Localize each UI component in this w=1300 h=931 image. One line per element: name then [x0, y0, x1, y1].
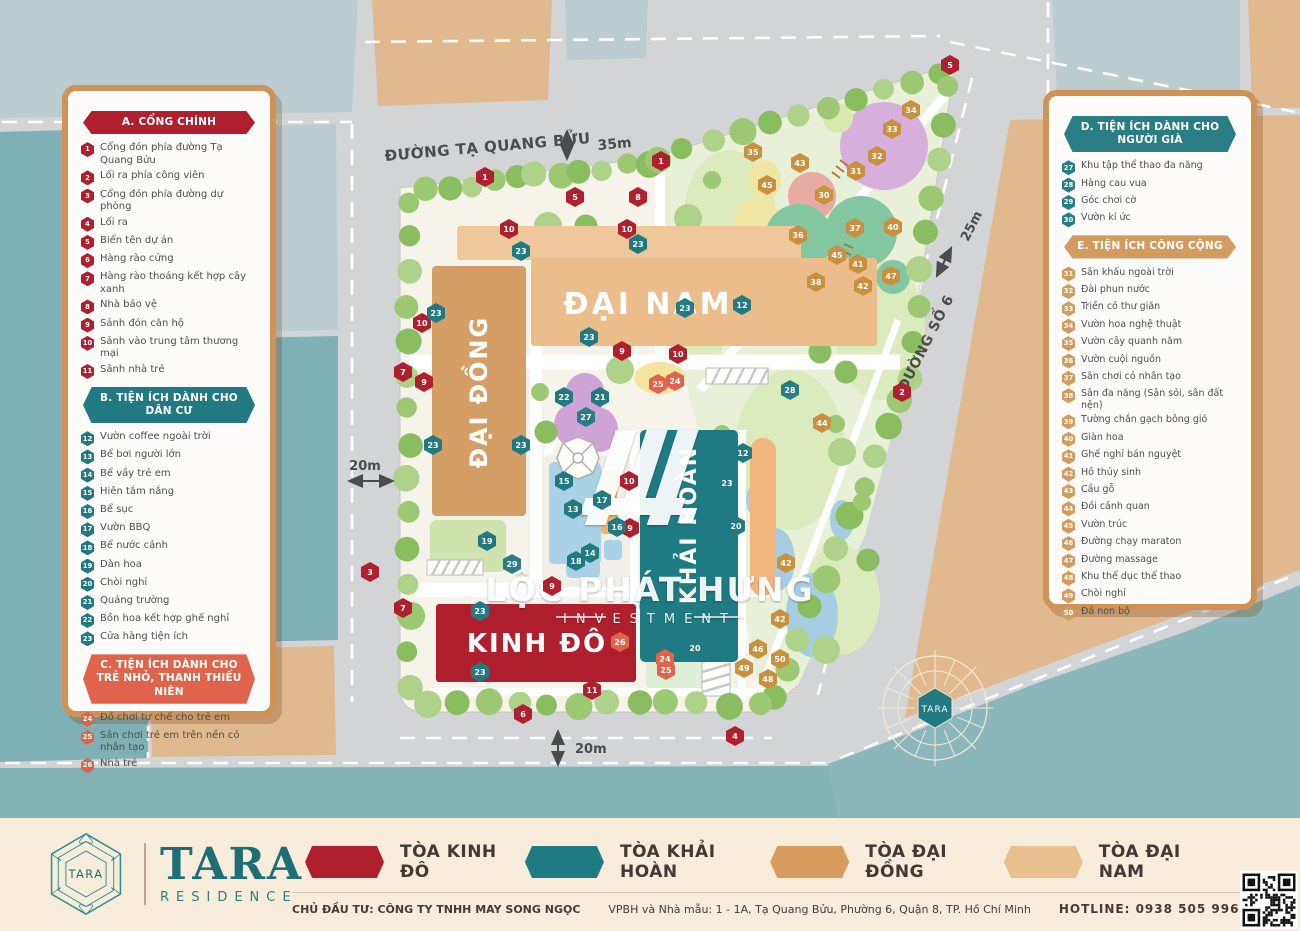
brand-wordmark: TARA RESIDENCE [160, 843, 303, 905]
qr-code [1240, 871, 1298, 929]
legend-item-label: Bể sục [100, 504, 133, 517]
legend-item-label: Vườn cuội nguồn [1081, 354, 1161, 366]
legend-item-label: Đài phun nước [1081, 284, 1150, 296]
legend-item-label: Dàn hoa [100, 559, 142, 572]
map-marker-41: 41 [849, 254, 867, 274]
legend-section-header-C: C. TIỆN ÍCH DÀNH CHO TRẺ NHỎ, THANH THIẾ… [83, 654, 255, 703]
map-marker-3: 3 [361, 562, 379, 582]
map-marker-23: 23 [676, 298, 694, 318]
hotline-text: HOTLINE: 0938 505 996 [1059, 902, 1240, 916]
legend-section-header-B: B. TIỆN ÍCH DÀNH CHO DÂN CƯ [83, 387, 255, 423]
legend-item-label: Vườn trúc [1081, 519, 1127, 531]
map-marker-47: 47 [882, 266, 900, 286]
legend-item-number: 43 [1062, 484, 1075, 499]
tower-swatch [1004, 846, 1083, 878]
map-marker-23: 23 [512, 241, 530, 261]
legend-item-label: Chòi nghỉ [100, 577, 147, 590]
legend-item-number: 14 [81, 468, 94, 483]
legend-item: 9Sảnh đón căn hộ [81, 318, 257, 333]
legend-item: 27Khu tập thể thao đa năng [1062, 160, 1238, 175]
legend-item-number: 17 [81, 522, 94, 537]
legend-item-number: 36 [1062, 354, 1075, 369]
map-marker-29: 29 [503, 554, 521, 574]
map-marker-1: 1 [652, 151, 670, 171]
legend-item: 11Sảnh nhà trẻ [81, 364, 257, 379]
tower-swatch [525, 846, 604, 878]
map-marker-10: 10 [618, 219, 636, 239]
legend-item-label: Giàn hoa [1081, 432, 1124, 444]
legend-section-header-A: A. CỔNG CHÍNH [83, 111, 255, 134]
legend-item-number: 25 [81, 730, 94, 745]
legend-item-label: Bồn hoa kết hợp ghế nghỉ [100, 613, 229, 626]
map-marker-46: 46 [749, 639, 767, 659]
map-marker-23: 23 [471, 662, 489, 682]
legend-item-number: 30 [1062, 212, 1075, 227]
legend-item-label: Nhà bảo vệ [100, 299, 157, 312]
legend-item: 25Sân chơi trẻ em trên nền cỏ nhân tạo [81, 730, 257, 755]
legend-item-number: 24 [81, 712, 94, 727]
legend-item-label: Cổng đón phía đường dự phòng [100, 189, 257, 214]
legend-panel-left: A. CỔNG CHÍNH1Cổng đón phía đường Tạ Qua… [62, 85, 276, 717]
legend-item: 29Góc chơi cờ [1062, 195, 1238, 210]
legend-item-label: Vườn coffee ngoài trời [100, 431, 211, 444]
legend-item-label: Ghế nghỉ bán nguyệt [1081, 449, 1181, 461]
master-plan-poster: ĐẠI NAM ĐẠI ĐỒNG KHẢI HOÀN KINH ĐÔ ĐƯỜNG… [0, 0, 1300, 931]
legend-item: 41Ghế nghỉ bán nguyệt [1062, 449, 1238, 464]
legend-item-number: 5 [81, 235, 94, 250]
legend-item-number: 20 [81, 577, 94, 592]
legend-item: 21Quảng trường [81, 595, 257, 610]
footer-divider [292, 892, 1240, 893]
legend-item-label: Đồi cảnh quan [1081, 501, 1150, 513]
legend-item-number: 35 [1062, 336, 1075, 351]
legend-item-label: Vườn hoa nghệ thuật [1081, 319, 1181, 331]
legend-item-number: 6 [81, 253, 94, 268]
legend-item-label: Bể vầy trẻ em [100, 468, 171, 481]
map-marker-17: 17 [593, 490, 611, 510]
map-marker-7: 7 [394, 598, 412, 618]
legend-item-label: Góc chơi cờ [1081, 195, 1136, 207]
legend-item-number: 9 [81, 318, 94, 333]
legend-item-label: Đường chạy maraton [1081, 536, 1181, 548]
tower-legend-item: TÒA KHẢI HOÀN [525, 842, 770, 882]
legend-section-header-D: D. TIỆN ÍCH DÀNH CHO NGƯỜI GIÀ [1064, 116, 1236, 152]
legend-item-label: Hiên tắm nắng [100, 486, 174, 499]
legend-item: 35Vườn cây quanh năm [1062, 336, 1238, 351]
legend-item: 2Lối ra phía công viên [81, 170, 257, 185]
legend-item: 47Đường massage [1062, 554, 1238, 569]
legend-item-label: Tường chắn gạch bông gió [1081, 414, 1207, 426]
legend-item-number: 49 [1062, 588, 1075, 603]
map-marker-10: 10 [620, 471, 638, 491]
legend-item-label: Hàng rào cứng [100, 253, 174, 266]
tower-legend-item: TÒA ĐẠI NAM [1004, 842, 1225, 882]
map-marker-23: 23 [512, 435, 530, 455]
map-marker-42: 42 [854, 276, 872, 296]
legend-item-label: Sảnh vào trung tâm thương mại [100, 336, 257, 361]
map-marker-5: 5 [941, 55, 959, 75]
legend-item: 26Nhà trẻ [81, 758, 257, 773]
legend-item: 45Vườn trúc [1062, 519, 1238, 534]
legend-item: 8Nhà bảo vệ [81, 299, 257, 314]
legend-item-label: Khu thể dục thể thao [1081, 571, 1181, 583]
legend-item: 16Bể sục [81, 504, 257, 519]
map-marker-23: 23 [424, 435, 442, 455]
legend-item: 24Đồ chơi tự chế cho trẻ em [81, 712, 257, 727]
map-marker-26: 26 [611, 632, 629, 652]
map-marker-28: 28 [781, 380, 799, 400]
legend-item-number: 26 [81, 758, 94, 773]
map-marker-31: 31 [847, 161, 865, 181]
legend-item-label: Vườn cây quanh năm [1081, 336, 1182, 348]
legend-item: 34Vườn hoa nghệ thuật [1062, 319, 1238, 334]
tower-swatch [305, 846, 384, 878]
legend-item: 5Biển tên dự án [81, 235, 257, 250]
legend-panel-right: D. TIỆN ÍCH DÀNH CHO NGƯỜI GIÀ27Khu tập … [1043, 90, 1257, 610]
legend-item: 50Đá non bộ [1062, 606, 1238, 621]
map-marker-27: 27 [577, 407, 595, 427]
map-marker-2: 2 [893, 382, 911, 402]
map-marker-15: 15 [555, 471, 573, 491]
legend-item-number: 27 [1062, 160, 1075, 175]
legend-item-label: Biển tên dự án [100, 235, 173, 248]
legend-item-number: 32 [1062, 284, 1075, 299]
map-marker-38: 38 [807, 272, 825, 292]
map-marker-32: 32 [868, 146, 886, 166]
tower-label: TÒA KHẢI HOÀN [620, 842, 770, 882]
legend-item: 30Vườn kí ức [1062, 212, 1238, 227]
legend-item: 19Dàn hoa [81, 559, 257, 574]
legend-item-number: 23 [81, 631, 94, 646]
legend-item-number: 12 [81, 431, 94, 446]
legend-item: 28Hàng cau vua [1062, 178, 1238, 193]
map-marker-8: 8 [629, 187, 647, 207]
map-marker-7: 7 [394, 362, 412, 382]
legend-item-number: 19 [81, 559, 94, 574]
legend-item-label: Quảng trường [100, 595, 169, 608]
legend-item: 13Bể bơi người lớn [81, 449, 257, 464]
legend-item-label: Bể bơi người lớn [100, 449, 181, 462]
map-marker-34: 34 [902, 100, 920, 120]
legend-item: 48Khu thể dục thể thao [1062, 571, 1238, 586]
brand-subtitle: RESIDENCE [160, 890, 303, 905]
map-marker-22: 22 [555, 387, 573, 407]
legend-item: 18Bể nước cảnh [81, 540, 257, 555]
legend-item-label: Cổng đón phía đường Tạ Quang Bửu [100, 142, 257, 167]
legend-item: 22Bồn hoa kết hợp ghế nghỉ [81, 613, 257, 628]
legend-item-number: 28 [1062, 178, 1075, 193]
legend-item: 37Sân chơi cỏ nhân tạo [1062, 371, 1238, 386]
map-marker-11: 11 [583, 680, 601, 700]
legend-item-number: 4 [81, 217, 94, 232]
map-marker-9: 9 [613, 341, 631, 361]
legend-item: 17Vườn BBQ [81, 522, 257, 537]
tower-swatch [770, 846, 849, 878]
legend-item-label: Lối ra phía công viên [100, 170, 205, 183]
legend-item-label: Vườn kí ức [1081, 212, 1131, 224]
legend-item: 46Đường chạy maraton [1062, 536, 1238, 551]
legend-item-label: Đường massage [1081, 554, 1158, 566]
map-marker-33: 33 [883, 119, 901, 139]
legend-item-label: Sảnh đón căn hộ [100, 318, 184, 331]
legend-item-number: 40 [1062, 432, 1075, 447]
legend-item: 23Cửa hàng tiện ích [81, 631, 257, 646]
legend-item-number: 33 [1062, 301, 1075, 316]
map-marker-45: 45 [758, 175, 776, 195]
legend-item-number: 11 [81, 364, 94, 379]
map-marker-43: 43 [791, 153, 809, 173]
map-marker-24: 24 [666, 371, 684, 391]
brand-name: TARA [160, 843, 303, 887]
tara-logo-text: TARA [67, 867, 103, 881]
map-marker-23: 23 [629, 234, 647, 254]
legend-item-number: 18 [81, 540, 94, 555]
legend-item-number: 13 [81, 449, 94, 464]
legend-item-number: 16 [81, 504, 94, 519]
map-marker-49: 49 [735, 658, 753, 678]
legend-item-number: 42 [1062, 467, 1075, 482]
tower-label: TÒA KINH ĐÔ [400, 842, 525, 882]
legend-item: 12Vườn coffee ngoài trời [81, 431, 257, 446]
legend-item: 4Lối ra [81, 217, 257, 232]
map-marker-45: 45 [828, 245, 846, 265]
legend-item-label: Chòi nghỉ [1081, 588, 1126, 600]
legend-item: 15Hiên tắm nắng [81, 486, 257, 501]
legend-item-label: Đá non bộ [1081, 606, 1130, 618]
legend-item: 6Hàng rào cứng [81, 253, 257, 268]
legend-item: 33Triền cỏ thư giãn [1062, 301, 1238, 316]
legend-item-number: 29 [1062, 195, 1075, 210]
legend-item-number: 1 [81, 142, 94, 157]
map-marker-42: 42 [777, 553, 795, 573]
legend-item: 43Cầu gỗ [1062, 484, 1238, 499]
legend-item-label: Cầu gỗ [1081, 484, 1114, 496]
legend-item-label: Triền cỏ thư giãn [1081, 301, 1160, 313]
legend-section-header-E: E. TIỆN ÍCH CÔNG CỘNG [1064, 235, 1236, 258]
legend-item: 39Tường chắn gạch bông gió [1062, 414, 1238, 429]
legend-item-number: 8 [81, 299, 94, 314]
map-marker-9: 9 [415, 372, 433, 392]
map-marker-10: 10 [669, 344, 687, 364]
tower-label: TÒA ĐẠI ĐỒNG [865, 842, 1004, 882]
map-marker-35: 35 [744, 142, 762, 162]
legend-item-label: Nhà trẻ [100, 758, 137, 771]
legend-item: 31Sân khấu ngoài trời [1062, 267, 1238, 282]
map-marker-1: 1 [476, 167, 494, 187]
legend-item-number: 38 [1062, 388, 1075, 403]
map-marker-13: 13 [564, 499, 582, 519]
map-marker-23: 23 [718, 473, 736, 493]
map-marker-20: 20 [686, 638, 704, 658]
tower-label: TÒA ĐẠI NAM [1099, 842, 1225, 882]
map-marker-12: 12 [733, 295, 751, 315]
office-text: VPBH và Nhà mẫu: 1 - 1A, Tạ Quang Bửu, P… [608, 903, 1030, 916]
legend-item: 38Sân đa năng (Sân sỏi, sân đất nện) [1062, 388, 1238, 412]
legend-item-label: Lối ra [100, 217, 128, 230]
tower-legend-item: TÒA KINH ĐÔ [305, 842, 525, 882]
legend-item-label: Cửa hàng tiện ích [100, 631, 188, 644]
legend-item: 7Hàng rào thoáng kết hợp cây xanh [81, 271, 257, 296]
legend-item-label: Bể nước cảnh [100, 540, 168, 553]
legend-item-number: 47 [1062, 554, 1075, 569]
legend-item: 14Bể vầy trẻ em [81, 468, 257, 483]
legend-item: 44Đồi cảnh quan [1062, 501, 1238, 516]
legend-item-number: 34 [1062, 319, 1075, 334]
legend-item: 40Giàn hoa [1062, 432, 1238, 447]
map-marker-36: 36 [789, 225, 807, 245]
brand-divider [144, 843, 146, 905]
legend-item-number: 2 [81, 170, 94, 185]
map-marker-23: 23 [580, 327, 598, 347]
map-marker-37: 37 [846, 218, 864, 238]
legend-item-label: Đồ chơi tự chế cho trẻ em [100, 712, 230, 725]
tower-legend: TÒA KINH ĐÔTÒA KHẢI HOÀNTÒA ĐẠI ĐỒNGTÒA … [305, 842, 1225, 882]
legend-item-label: Sân đa năng (Sân sỏi, sân đất nện) [1081, 388, 1238, 412]
legend-item-number: 7 [81, 271, 94, 286]
legend-item-number: 3 [81, 189, 94, 204]
map-marker-4: 4 [726, 726, 744, 746]
footer: TARA TARA RESIDENCE TÒA KINH ĐÔTÒA KHẢI … [0, 818, 1300, 931]
map-marker-40: 40 [884, 217, 902, 237]
legend-item-label: Sân khấu ngoài trời [1081, 267, 1174, 279]
map-marker-5: 5 [566, 187, 584, 207]
map-marker-30: 30 [815, 185, 833, 205]
legend-item: 32Đài phun nước [1062, 284, 1238, 299]
map-marker-25: 25 [649, 374, 667, 394]
legend-item-label: Khu tập thể thao đa năng [1081, 160, 1203, 172]
legend-item-number: 39 [1062, 414, 1075, 429]
footer-info: CHỦ ĐẦU TƯ: CÔNG TY TNHH MAY SONG NGỌC V… [292, 902, 1225, 916]
map-marker-20: 20 [727, 516, 745, 536]
map-marker-9: 9 [543, 576, 561, 596]
map-marker-19: 19 [478, 531, 496, 551]
legend-item: 10Sảnh vào trung tâm thương mại [81, 336, 257, 361]
legend-item: 20Chòi nghỉ [81, 577, 257, 592]
map-marker-10: 10 [500, 219, 518, 239]
tara-logo: TARA [42, 828, 130, 920]
legend-item-label: Sân chơi trẻ em trên nền cỏ nhân tạo [100, 730, 257, 755]
legend-item: 42Hồ thủy sinh [1062, 467, 1238, 482]
legend-item-label: Vườn BBQ [100, 522, 150, 535]
developer-text: CHỦ ĐẦU TƯ: CÔNG TY TNHH MAY SONG NGỌC [292, 903, 580, 916]
legend-item-number: 37 [1062, 371, 1075, 386]
legend-item-label: Hàng cau vua [1081, 178, 1147, 190]
legend-item-number: 22 [81, 613, 94, 628]
legend-item-number: 50 [1062, 606, 1075, 621]
legend-item-number: 10 [81, 336, 94, 351]
map-marker-23: 23 [471, 601, 489, 621]
legend-item-number: 44 [1062, 501, 1075, 516]
map-marker-21: 21 [591, 387, 609, 407]
legend-item-number: 45 [1062, 519, 1075, 534]
legend-item-number: 48 [1062, 571, 1075, 586]
legend-item: 36Vườn cuội nguồn [1062, 354, 1238, 369]
legend-item-number: 46 [1062, 536, 1075, 551]
map-marker-48: 48 [759, 669, 777, 689]
legend-item-number: 31 [1062, 267, 1075, 282]
legend-item-number: 41 [1062, 449, 1075, 464]
tower-legend-item: TÒA ĐẠI ĐỒNG [770, 842, 1004, 882]
legend-item: 49Chòi nghỉ [1062, 588, 1238, 603]
map-marker-12: 12 [734, 443, 752, 463]
legend-item-number: 15 [81, 486, 94, 501]
map-marker-42: 42 [771, 609, 789, 629]
legend-item-label: Hồ thủy sinh [1081, 467, 1141, 479]
brand: TARA TARA RESIDENCE [42, 828, 303, 920]
legend-item: 3Cổng đón phía đường dự phòng [81, 189, 257, 214]
legend-item-label: Sân chơi cỏ nhân tạo [1081, 371, 1181, 383]
map-marker-44: 44 [813, 413, 831, 433]
legend-item: 1Cổng đón phía đường Tạ Quang Bửu [81, 142, 257, 167]
map-marker-50: 50 [771, 649, 789, 669]
legend-item-label: Sảnh nhà trẻ [100, 364, 165, 377]
legend-item-label: Hàng rào thoáng kết hợp cây xanh [100, 271, 257, 296]
map-marker-6: 6 [514, 704, 532, 724]
legend-item-number: 21 [81, 595, 94, 610]
